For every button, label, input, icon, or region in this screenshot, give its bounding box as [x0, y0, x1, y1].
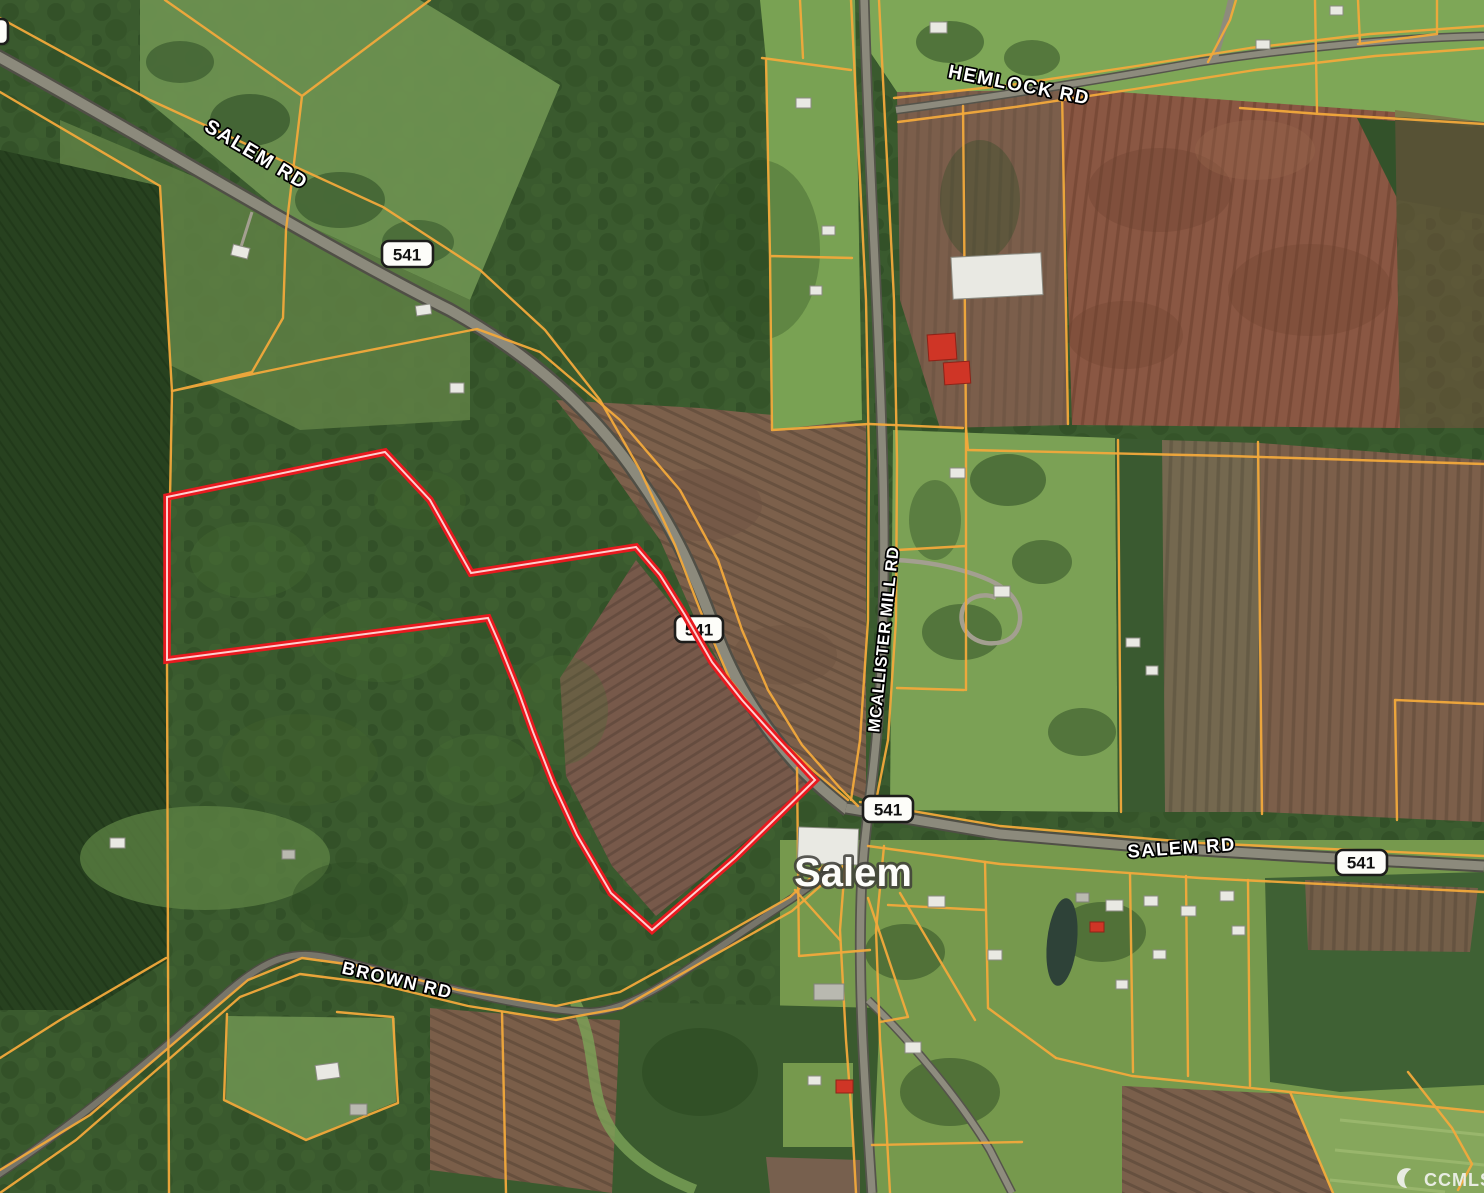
- route-shield-541-intersection: 541: [863, 796, 913, 822]
- shield-541-intersection-text: 541: [874, 801, 902, 820]
- watermark-text: CCMLS: [1424, 1170, 1484, 1190]
- map-canvas: 541 541 541 541 SALEM RD HEMLOCK RD MCAL…: [0, 0, 1484, 1193]
- route-shield-541-east: 541: [1336, 850, 1387, 875]
- route-shield-541-northwest: 541: [382, 241, 433, 267]
- shield-541-nw-text: 541: [393, 246, 421, 265]
- town-label-salem: Salem Salem: [794, 851, 912, 895]
- shield-541-east-text: 541: [1347, 854, 1375, 873]
- route-shield-541-edge-clipped: [0, 19, 8, 44]
- satellite-parcel-map[interactable]: 541 541 541 541 SALEM RD HEMLOCK RD MCAL…: [0, 0, 1484, 1193]
- town-label-text: Salem: [794, 851, 912, 895]
